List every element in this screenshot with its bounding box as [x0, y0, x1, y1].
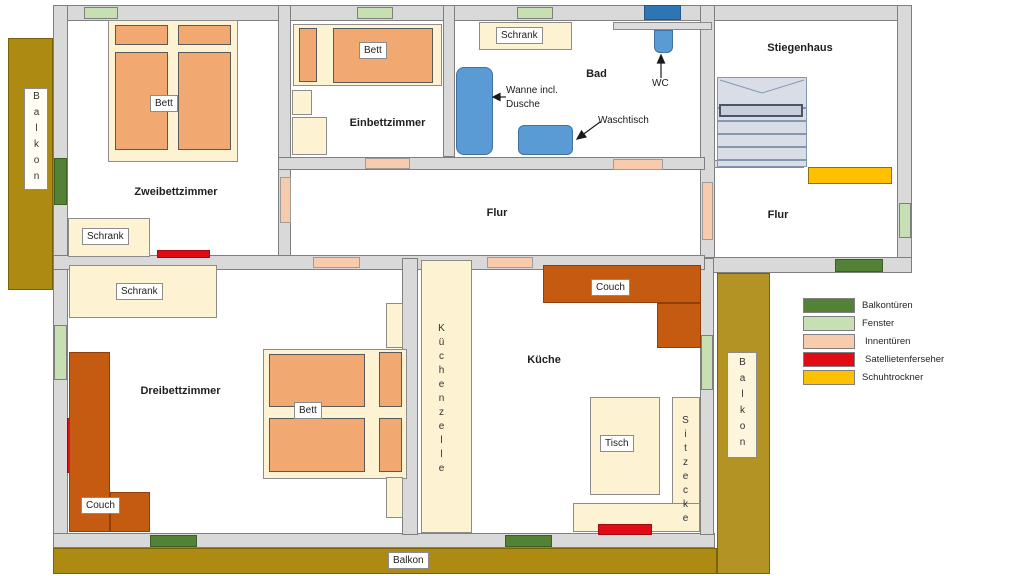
- balcony-door-dreibett: [150, 535, 197, 547]
- bed-zweibett-pillow-2: [178, 25, 231, 45]
- bed-dreibett-pillow-1: [379, 352, 402, 407]
- tag-couch-kueche: Couch: [591, 279, 630, 296]
- stairs-landing-lines: [718, 78, 806, 96]
- door-dreibett: [313, 257, 360, 268]
- legend-label-innentueren: Innentüren: [865, 336, 910, 347]
- legend-swatch-schuhtrockner: [803, 370, 855, 385]
- window-wc-blue: [644, 5, 681, 20]
- bed-zweibett-mattress-2: [178, 52, 231, 150]
- kuechenzeile-label: Küchenzelle: [436, 305, 446, 495]
- dreibett-cupboard-2: [386, 477, 403, 518]
- sat-tv-zweibett: [157, 250, 210, 258]
- window-top-einbett: [357, 7, 393, 19]
- room-label-zweibettzimmer: Zweibettzimmer: [124, 186, 228, 198]
- tag-schrank-zweibett: Schrank: [82, 228, 129, 245]
- wanne-arrow: [493, 94, 506, 101]
- window-kueche-right: [701, 335, 713, 390]
- bed-dreibett-pillow-2: [379, 418, 402, 472]
- wanne-annotation: Wanne incl. Dusche: [506, 84, 558, 112]
- tag-bett-dreibett: Bett: [294, 402, 322, 419]
- wall-einbett-bad: [443, 5, 455, 157]
- sitzecke-label: Sitzecke: [680, 415, 690, 527]
- room-label-dreibettzimmer: Dreibettzimmer: [128, 385, 233, 397]
- bed-einbett-pillow: [299, 28, 317, 82]
- legend-swatch-balkontueren: [803, 298, 855, 313]
- schuhtrockner: [808, 167, 892, 184]
- bed-dreibett-mattress-1: [269, 354, 365, 407]
- legend-label-schuhtrockner: Schuhtrockner: [862, 372, 923, 383]
- wall-top: [57, 5, 912, 21]
- sat-tv-kueche-bar: [598, 524, 652, 535]
- bad-top-ledge: [613, 22, 712, 30]
- door-bad: [613, 159, 663, 170]
- door-kueche: [487, 257, 533, 268]
- room-label-flur-rechts: Flur: [743, 209, 813, 221]
- door-einbett: [365, 158, 410, 169]
- tag-tisch: Tisch: [600, 435, 634, 452]
- balcony-door-zweibett: [54, 158, 67, 205]
- room-label-einbettzimmer: Einbettzimmer: [335, 117, 440, 129]
- washbasin: [518, 125, 573, 155]
- legend-label-satellit: Satellietenferseher: [865, 354, 944, 365]
- wall-zweibett-right: [278, 5, 291, 267]
- waschtisch-arrow: [577, 122, 600, 139]
- tag-schrank-bad: Schrank: [496, 27, 543, 44]
- wc-annotation: WC: [652, 78, 669, 89]
- legend-label-balkontueren: Balkontüren: [862, 300, 913, 311]
- wall-left: [53, 5, 68, 548]
- balkon-label-right-text: Balkon: [737, 357, 747, 453]
- door-zweibett-flur: [280, 177, 291, 223]
- legend: Balkontüren Fenster Innentüren Satelliet…: [803, 296, 1003, 392]
- room-label-bad: Bad: [574, 68, 619, 80]
- bathtub: [456, 67, 493, 155]
- balkon-label-right: Balkon: [727, 352, 757, 458]
- room-label-kueche: Küche: [514, 354, 574, 366]
- balkon-label-left-text: Balkon: [31, 91, 41, 187]
- window-top-bad: [517, 7, 553, 19]
- room-label-stiegenhaus: Stiegenhaus: [750, 42, 850, 54]
- legend-label-fenster: Fenster: [862, 318, 894, 329]
- balcony-bottom: [53, 548, 717, 574]
- einbett-shelf-1: [292, 90, 312, 115]
- window-dreibett-left: [54, 325, 67, 380]
- stairs-step-highlight: [719, 104, 803, 117]
- bed-dreibett-mattress-2: [269, 418, 365, 472]
- staircase: [717, 77, 807, 167]
- legend-swatch-innentueren: [803, 334, 855, 349]
- legend-swatch-satellit: [803, 352, 855, 367]
- tag-couch-dreibett: Couch: [81, 497, 120, 514]
- tag-bett-zweibett: Bett: [150, 95, 178, 112]
- couch-kueche-arm: [657, 303, 701, 348]
- door-flur-rechts: [702, 182, 713, 240]
- tag-schrank-dreibett: Schrank: [116, 283, 163, 300]
- einbett-shelf-2: [292, 117, 327, 155]
- balcony-door-kueche: [505, 535, 552, 547]
- window-top-zweibett: [84, 7, 118, 19]
- balcony-door-flur-rechts: [835, 259, 883, 272]
- balkon-label-bottom: Balkon: [388, 552, 429, 569]
- wanne-annotation-line2: Dusche: [506, 98, 558, 112]
- wall-kueche-right: [700, 258, 714, 535]
- wc-arrow: [658, 55, 665, 78]
- balkon-label-left: Balkon: [24, 88, 48, 190]
- window-flur-right: [899, 203, 911, 238]
- floor-plan: Zweibettzimmer Einbettzimmer Bad Stiegen…: [0, 0, 1024, 576]
- bed-zweibett-pillow-1: [115, 25, 168, 45]
- toilet: [654, 30, 673, 53]
- waschtisch-annotation: Waschtisch: [598, 115, 649, 126]
- dreibett-cupboard-1: [386, 303, 403, 348]
- legend-swatch-fenster: [803, 316, 855, 331]
- room-label-flur-mitte: Flur: [462, 207, 532, 219]
- wanne-annotation-line1: Wanne incl.: [506, 84, 558, 98]
- tag-bett-einbett: Bett: [359, 42, 387, 59]
